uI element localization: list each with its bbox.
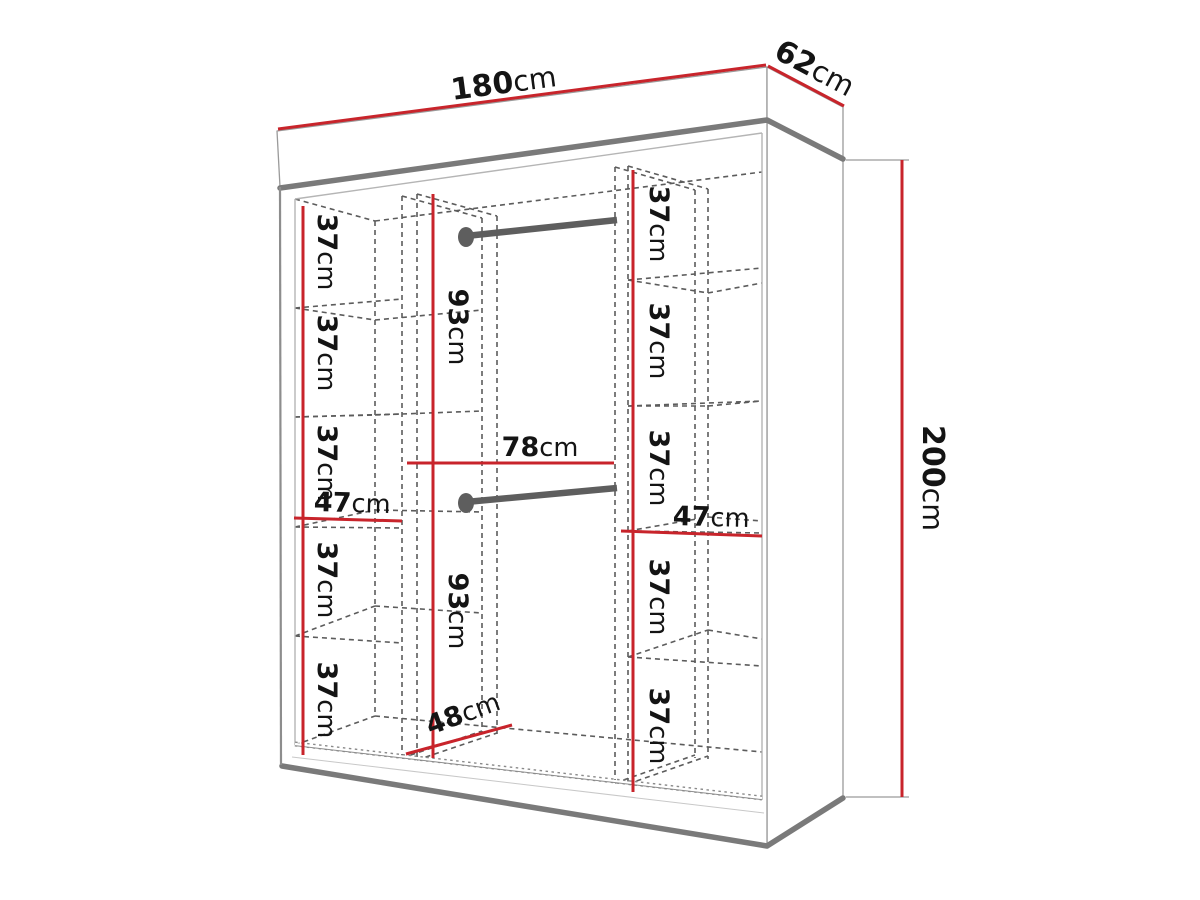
label-right-section-4: 37cm — [643, 559, 674, 636]
label-right-width: 47cm — [673, 501, 750, 534]
label-right-section-1: 37cm — [643, 186, 674, 263]
label-lower-hanging-height: 93cm — [442, 573, 473, 650]
label-upper-hanging-height: 93cm — [442, 289, 473, 366]
label-left-section-4: 37cm — [311, 542, 342, 619]
wardrobe-dimension-diagram: 180cm 62cm 200cm 37cm 37cm 37cm 37cm 37c… — [0, 0, 1200, 900]
label-left-width: 47cm — [314, 487, 391, 520]
label-right-section-3: 37cm — [643, 430, 674, 507]
label-right-section-5: 37cm — [643, 688, 674, 765]
label-left-section-1: 37cm — [311, 214, 342, 291]
label-center-width: 78cm — [502, 432, 579, 463]
label-left-section-5: 37cm — [311, 662, 342, 739]
label-right-section-2: 37cm — [643, 303, 674, 380]
label-left-section-2: 37cm — [311, 315, 342, 392]
side-face — [767, 119, 843, 847]
label-overall-height: 200cm — [915, 425, 950, 531]
